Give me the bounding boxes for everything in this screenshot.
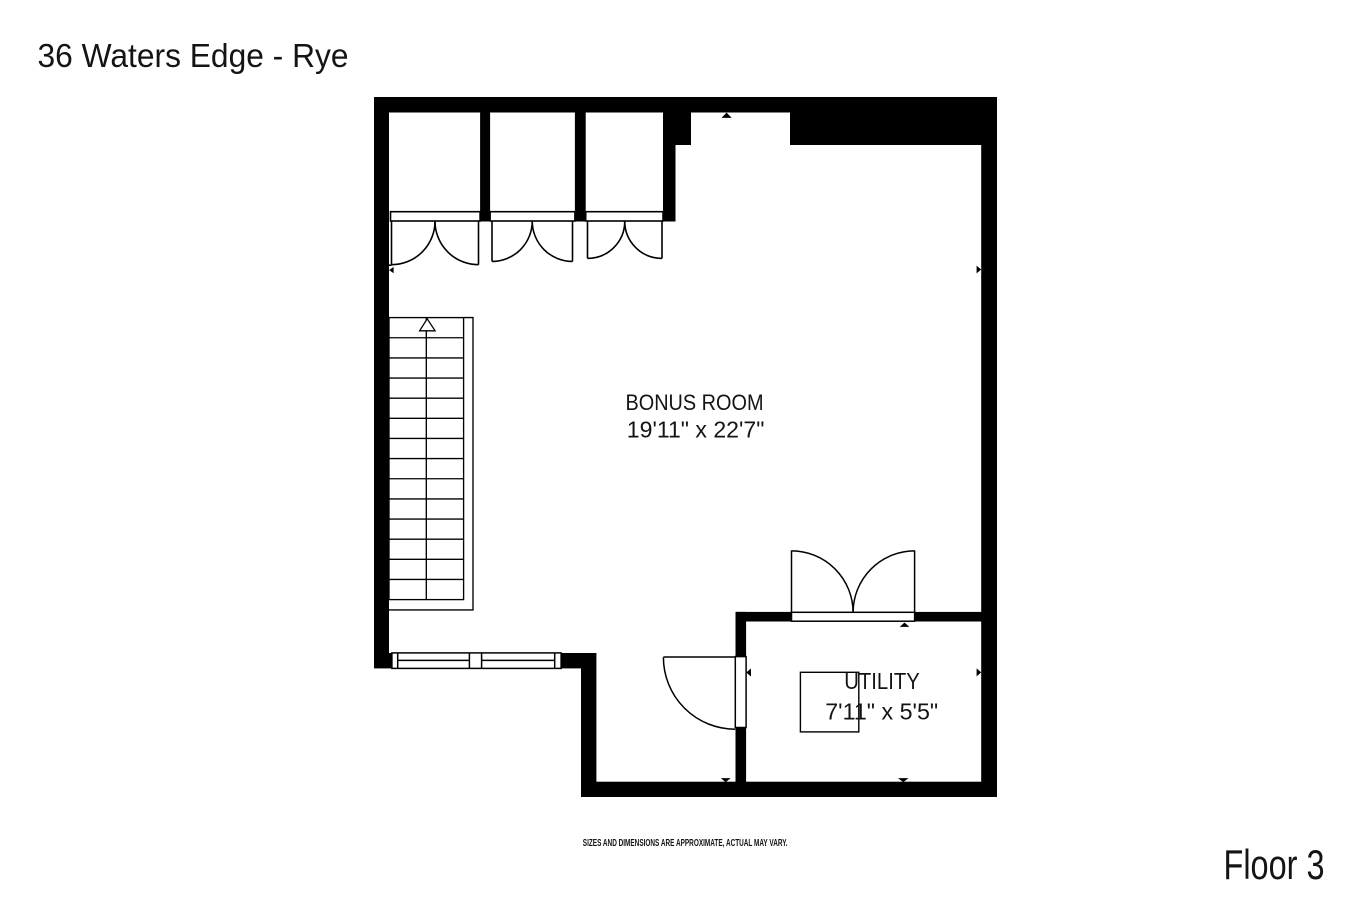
svg-text:BONUS ROOM: BONUS ROOM: [626, 390, 764, 415]
svg-text:Floor 3: Floor 3: [1224, 841, 1325, 888]
svg-text:UTILITY: UTILITY: [844, 668, 920, 694]
svg-text:19'11" x 22'7": 19'11" x 22'7": [627, 417, 765, 443]
svg-text:SIZES AND DIMENSIONS ARE APPRO: SIZES AND DIMENSIONS ARE APPROXIMATE, AC…: [583, 838, 788, 849]
svg-text:7'11" x 5'5": 7'11" x 5'5": [825, 699, 938, 725]
svg-text:36 Waters Edge - Rye: 36 Waters Edge - Rye: [38, 38, 349, 75]
